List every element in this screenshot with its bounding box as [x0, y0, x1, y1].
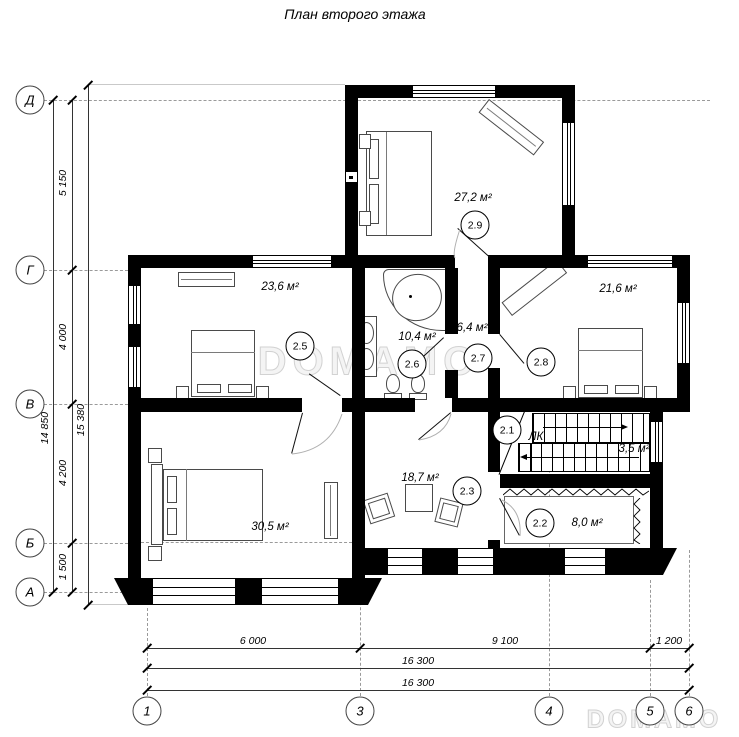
dim-label: 9 100 [492, 635, 518, 647]
door-arc [500, 498, 524, 538]
window [588, 255, 672, 268]
room-number: 2.8 [527, 348, 556, 377]
table [405, 484, 433, 512]
dim-line [147, 668, 689, 669]
bed-headboard [151, 464, 163, 545]
dim-line [147, 690, 689, 691]
dim-label: 14 850 [39, 412, 51, 444]
window [262, 578, 338, 605]
axis-marker-3: 3 [346, 697, 375, 726]
dim-line [88, 85, 89, 605]
wall [493, 548, 565, 575]
axis-marker-g: Г [16, 256, 45, 285]
room-area-label: 10,4 м² [398, 331, 435, 343]
wall [342, 398, 365, 412]
axis-line-d [44, 100, 710, 101]
dim-label: 4 200 [57, 460, 69, 486]
wall-corner-flare [114, 578, 128, 605]
axis-line-1 [147, 608, 148, 696]
pillow [167, 508, 177, 535]
pillow [228, 384, 252, 393]
floor-plan-sheet: План второго этажа DOMAMO DOMAMO 5 150 4… [0, 0, 739, 737]
dim-label: 1 200 [656, 635, 682, 647]
room-number: 2.5 [286, 332, 315, 361]
room-number: 2.7 [464, 344, 493, 373]
stair-arrowhead [621, 424, 628, 430]
room-number: 2.1 [493, 416, 522, 445]
door-arc [415, 412, 453, 444]
wall [128, 324, 141, 347]
wall [422, 548, 458, 575]
axis-marker-4: 4 [535, 697, 564, 726]
wall [128, 398, 302, 412]
dim-line [147, 648, 689, 649]
bed-blanket-line [578, 350, 643, 351]
dim-label: 4 000 [57, 324, 69, 350]
hatch-zigzag-h [503, 487, 649, 497]
window [253, 255, 331, 268]
pillow [584, 385, 608, 394]
nightstand [359, 211, 371, 226]
bed-blanket-line [186, 469, 187, 541]
stair-arrow-down [527, 457, 639, 458]
bed-blanket-line [386, 132, 387, 235]
wall-corner-flare [368, 578, 382, 605]
wall-notch-mark [349, 176, 353, 179]
radiator-line [487, 108, 536, 147]
axis-line-6 [689, 550, 690, 696]
wall [358, 255, 455, 268]
nightstand [148, 546, 162, 561]
wall [365, 398, 415, 412]
window [128, 286, 141, 324]
wall-corner-flare [663, 548, 677, 575]
window [458, 548, 493, 575]
radiator [324, 482, 338, 539]
pillow [197, 384, 221, 393]
axis-marker-6: 6 [675, 697, 704, 726]
window [388, 548, 422, 575]
window [562, 123, 575, 205]
nightstand [359, 134, 371, 149]
axis-marker-5: 5 [636, 697, 665, 726]
room-area-label: 27,2 м² [454, 192, 491, 204]
wall [605, 548, 663, 575]
axis-marker-v: В [16, 390, 45, 419]
window [677, 303, 690, 363]
stair-arrow-up [543, 427, 623, 428]
wall [452, 398, 690, 412]
window [128, 347, 141, 387]
radiator-line [181, 279, 232, 280]
page-title: План второго этажа [284, 6, 425, 22]
room-area-label: 8,0 м² [572, 517, 603, 529]
dim-label: 16 300 [402, 677, 434, 689]
room-area-label: 3,5 м² [619, 443, 650, 455]
room-area-label: 23,6 м² [261, 281, 298, 293]
pillow [167, 476, 177, 503]
dim-label: 15 380 [75, 404, 87, 436]
room-area-label: 21,6 м² [599, 283, 636, 295]
wall [338, 578, 368, 605]
room-number: 2.3 [453, 477, 482, 506]
door-leaf [499, 334, 524, 364]
dim-label: 6 000 [240, 635, 266, 647]
dim-label: 5 150 [57, 170, 69, 196]
wall [562, 255, 588, 268]
wall [331, 255, 358, 268]
room-number: 2.2 [526, 509, 555, 538]
wall [355, 548, 388, 575]
axis-line-5 [650, 580, 651, 696]
window [413, 85, 495, 98]
axis-marker-d: Д [16, 86, 45, 115]
room-area-label: 18,7 м² [401, 472, 438, 484]
wall [672, 255, 690, 268]
window [565, 548, 605, 575]
stair-arrowhead [520, 454, 527, 460]
toilet-bowl [386, 374, 400, 393]
room-number: 2.9 [461, 211, 490, 240]
wall [235, 578, 262, 605]
room-area-label: 6,4 м² [457, 322, 488, 334]
stair-flight-upper [532, 413, 650, 443]
room-area-label: 30,5 м² [251, 521, 288, 533]
dim-label: 16 300 [402, 655, 434, 667]
wall [650, 412, 663, 422]
wall [352, 268, 365, 398]
window [153, 578, 235, 605]
wall [128, 268, 141, 286]
wall [677, 363, 690, 412]
wall [128, 387, 141, 605]
dim-line [72, 100, 73, 592]
nightstand [148, 448, 162, 463]
wall [128, 255, 253, 268]
wall [677, 268, 690, 303]
wall [500, 474, 650, 488]
radiator-line [330, 485, 331, 536]
bed-blanket-line [191, 352, 255, 353]
axis-line-b [44, 543, 128, 544]
room-number: 2.6 [398, 350, 427, 379]
axis-marker-b: Б [16, 529, 45, 558]
dashed-zone-line [141, 542, 352, 543]
extension-line-top [88, 84, 345, 85]
dim-label: 1 500 [57, 554, 69, 580]
pillow [615, 385, 639, 394]
axis-marker-a: А [16, 578, 45, 607]
axis-marker-1: 1 [133, 697, 162, 726]
wall [128, 578, 153, 605]
stair-tag: ЛК [529, 431, 544, 443]
dim-line [53, 100, 54, 592]
bed [163, 469, 263, 541]
hatch-zigzag-v [632, 498, 643, 544]
door-arc [290, 412, 344, 456]
wall [488, 268, 500, 334]
bathtub-drain [409, 295, 412, 298]
window [650, 422, 663, 462]
axis-line-g [44, 270, 128, 271]
wall [445, 370, 458, 398]
